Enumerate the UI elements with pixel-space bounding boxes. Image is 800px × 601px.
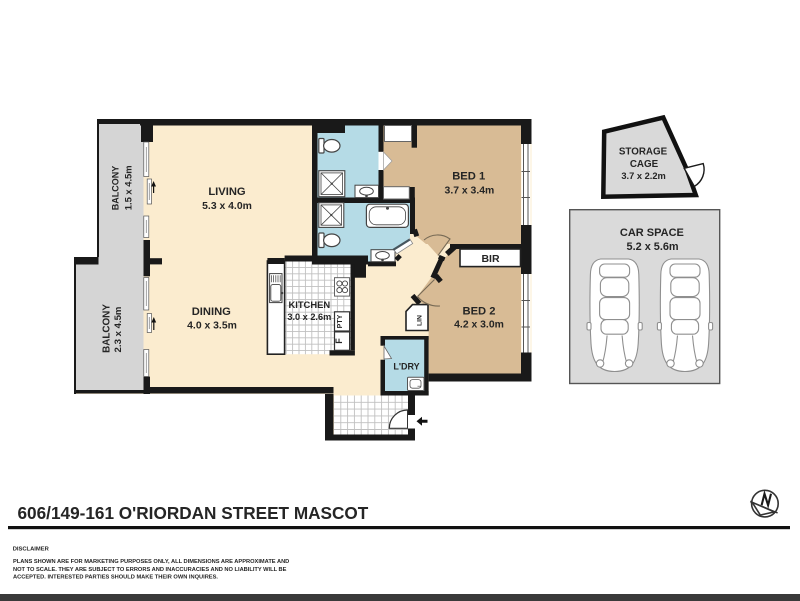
svg-text:F: F <box>334 338 344 344</box>
svg-text:3.0 x 2.6m: 3.0 x 2.6m <box>287 312 331 322</box>
svg-text:BIR: BIR <box>481 253 500 265</box>
svg-text:3.7 x 3.4m: 3.7 x 3.4m <box>445 186 495 197</box>
svg-text:5.3 x 4.0m: 5.3 x 4.0m <box>202 201 252 212</box>
svg-text:NOT TO SCALE. THEY ARE SUBJECT: NOT TO SCALE. THEY ARE SUBJECT TO ERRORS… <box>13 567 287 573</box>
svg-text:PTY: PTY <box>337 314 344 328</box>
svg-text:LIN: LIN <box>417 315 424 326</box>
svg-text:606/149-161 O'RIORDAN STREET M: 606/149-161 O'RIORDAN STREET MASCOT <box>18 503 369 523</box>
svg-text:2.3 x 4.5m: 2.3 x 4.5m <box>113 307 124 353</box>
svg-text:CAGE: CAGE <box>630 159 659 170</box>
svg-text:BALCONY: BALCONY <box>101 304 112 353</box>
svg-text:DINING: DINING <box>192 306 231 318</box>
svg-text:BED 2: BED 2 <box>463 306 496 318</box>
svg-text:KITCHEN: KITCHEN <box>288 299 330 310</box>
svg-text:LIVING: LIVING <box>208 186 246 198</box>
svg-text:4.0 x 3.5m: 4.0 x 3.5m <box>187 321 237 332</box>
svg-text:PLANS SHOWN ARE FOR MARKETING: PLANS SHOWN ARE FOR MARKETING PURPOSES O… <box>13 559 289 565</box>
svg-text:3.7 x 2.2m: 3.7 x 2.2m <box>621 171 665 181</box>
svg-text:STORAGE: STORAGE <box>619 146 668 157</box>
svg-text:L'DRY: L'DRY <box>393 361 419 371</box>
svg-text:BALCONY: BALCONY <box>111 166 121 211</box>
svg-text:4.2 x 3.0m: 4.2 x 3.0m <box>454 319 504 330</box>
svg-text:5.2 x 5.6m: 5.2 x 5.6m <box>627 241 679 253</box>
svg-text:BED 1: BED 1 <box>452 171 485 183</box>
svg-text:1.5 x 4.5m: 1.5 x 4.5m <box>122 165 133 210</box>
svg-text:CAR SPACE: CAR SPACE <box>620 227 684 239</box>
svg-text:DISCLAIMER: DISCLAIMER <box>13 547 50 553</box>
svg-text:ACCEPTED. INTERESTED PARTIES S: ACCEPTED. INTERESTED PARTIES SHOULD MAKE… <box>13 574 218 580</box>
